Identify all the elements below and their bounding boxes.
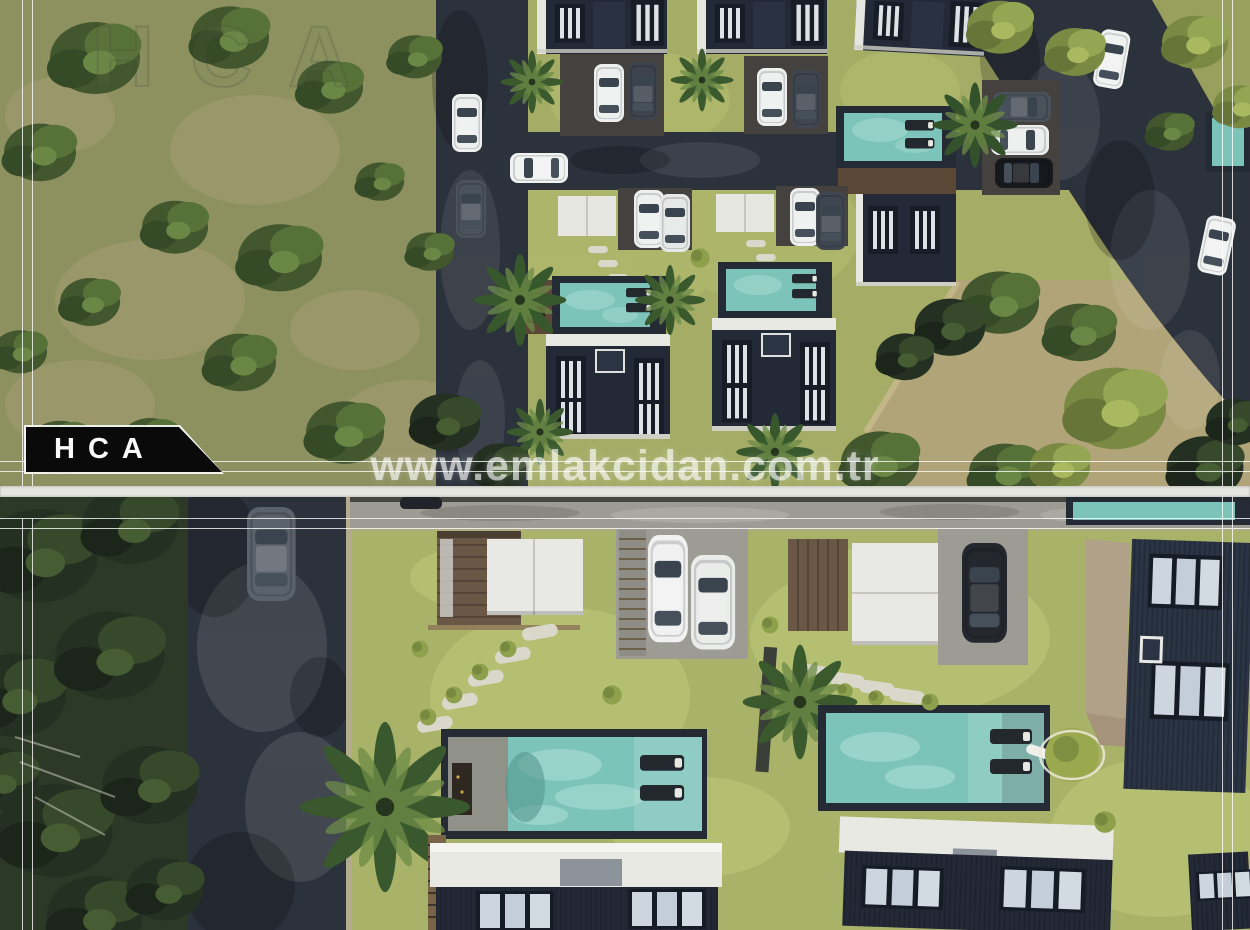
parked-car-white bbox=[660, 194, 690, 252]
top-scene bbox=[0, 0, 1250, 486]
dark-tree-grove bbox=[0, 497, 205, 930]
villa-roof-bottom bbox=[430, 843, 722, 930]
sun-lounger bbox=[990, 759, 1032, 774]
sun-lounger bbox=[905, 120, 934, 131]
beige-wall bbox=[1086, 539, 1130, 719]
parked-car-gray bbox=[247, 507, 296, 601]
sun-lounger bbox=[792, 274, 818, 283]
parked-car-white bbox=[790, 188, 820, 246]
sun-lounger bbox=[990, 729, 1032, 744]
palm-tree bbox=[932, 82, 1017, 167]
pool-terrace bbox=[441, 729, 707, 839]
white-canopy bbox=[487, 539, 583, 615]
parked-car-gray bbox=[628, 62, 658, 120]
parked-car-gray bbox=[816, 192, 846, 250]
villa-roof-bottom-right bbox=[836, 816, 1114, 930]
car-at-edge bbox=[400, 497, 442, 509]
sun-lounger bbox=[640, 785, 684, 801]
parked-suv-black bbox=[962, 543, 1007, 643]
pool-deck bbox=[838, 168, 956, 194]
wood-pergola bbox=[788, 539, 848, 631]
white-canopy bbox=[852, 543, 938, 645]
curb bbox=[346, 497, 352, 930]
parked-car-white bbox=[648, 535, 688, 642]
hca-logo-text: HCA bbox=[26, 435, 156, 464]
parked-car-white bbox=[594, 64, 624, 122]
driveway bbox=[616, 527, 748, 659]
slanted-roof bbox=[1123, 539, 1250, 793]
roof-window bbox=[1141, 637, 1162, 662]
panel-divider bbox=[0, 486, 1250, 497]
palm-tree bbox=[501, 51, 564, 114]
swimming-pool bbox=[1073, 502, 1235, 520]
driving-car-white bbox=[510, 153, 568, 183]
aerial-view-villa-closeup bbox=[0, 497, 1250, 930]
palm-tree bbox=[671, 49, 734, 112]
pool-terrace bbox=[818, 705, 1062, 811]
villa-center-right bbox=[712, 186, 848, 431]
sun-lounger bbox=[640, 755, 684, 771]
aerial-view-site-overview: HCA bbox=[0, 0, 1250, 486]
sun-lounger bbox=[792, 289, 818, 298]
parked-car-white bbox=[634, 190, 664, 248]
aerial-render-collage: HCA HCA www.emlakcidan.com.tr bbox=[0, 0, 1250, 930]
sun-lounger bbox=[905, 138, 934, 149]
corner-roof bbox=[1188, 851, 1250, 930]
parked-car-gray bbox=[456, 180, 486, 238]
parked-car-white bbox=[452, 94, 482, 152]
parked-car-gray bbox=[791, 70, 821, 128]
parked-car-black bbox=[995, 158, 1053, 188]
parked-suv-white bbox=[691, 555, 735, 650]
parked-car-white bbox=[757, 68, 787, 126]
bottom-scene bbox=[0, 497, 1250, 930]
driveway bbox=[938, 529, 1028, 665]
